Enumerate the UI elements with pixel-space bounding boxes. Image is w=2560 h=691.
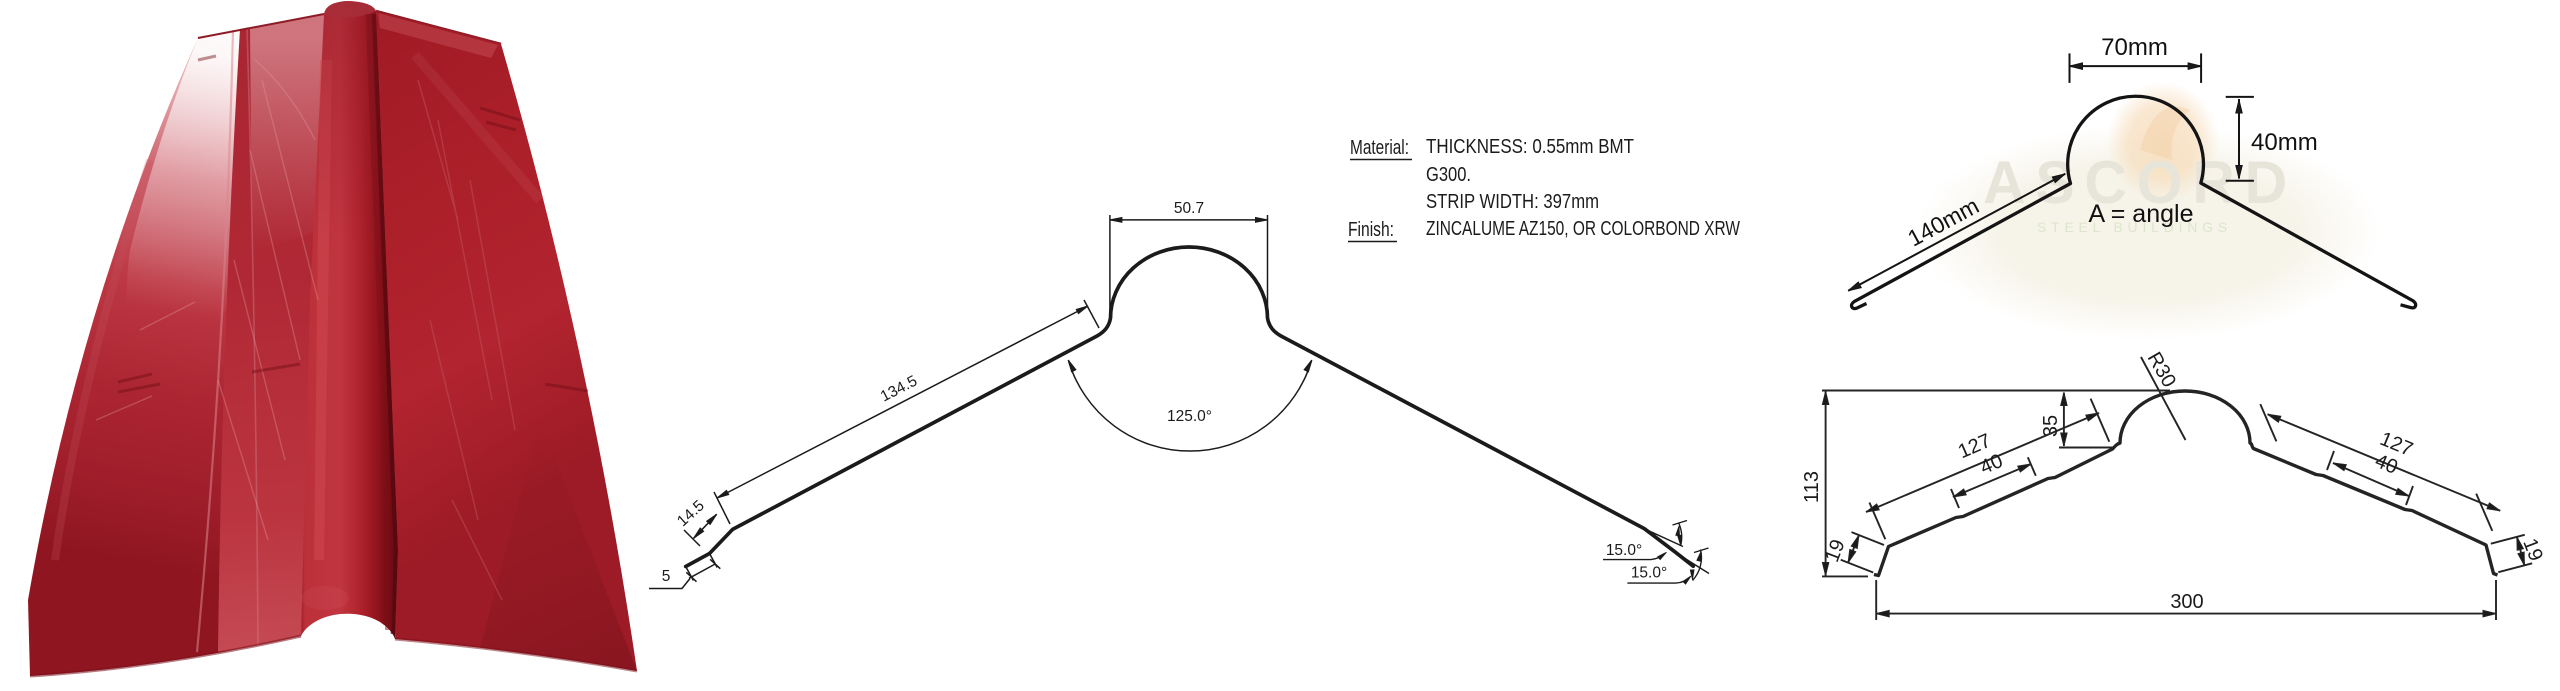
svg-text:70mm: 70mm (2101, 34, 2168, 61)
svg-text:15.0°: 15.0° (1606, 542, 1642, 559)
svg-text:5: 5 (662, 568, 671, 585)
svg-text:15.0°: 15.0° (1631, 565, 1667, 582)
svg-text:A = angle: A = angle (2089, 200, 2194, 228)
svg-text:125.0°: 125.0° (1167, 408, 1212, 425)
svg-text:50.7: 50.7 (1174, 200, 1204, 217)
svg-text:ZINCALUME AZ150, OR COLORBO: ZINCALUME AZ150, OR COLORBOND XRW (1426, 217, 1740, 240)
svg-text:300: 300 (2170, 591, 2203, 613)
svg-text:STRIP WIDTH: 397mm: STRIP WIDTH: 397mm (1426, 190, 1599, 213)
svg-text:Material:: Material: (1350, 136, 1409, 159)
svg-text:35: 35 (2040, 415, 2062, 437)
svg-text:G300.: G300. (1426, 163, 1471, 186)
svg-text:40mm: 40mm (2251, 129, 2318, 156)
svg-text:THICKNESS: 0.55mm BMT: THICKNESS: 0.55mm BMT (1426, 135, 1634, 158)
svg-text:113: 113 (1801, 471, 1823, 503)
svg-text:Finish:: Finish: (1348, 218, 1394, 241)
